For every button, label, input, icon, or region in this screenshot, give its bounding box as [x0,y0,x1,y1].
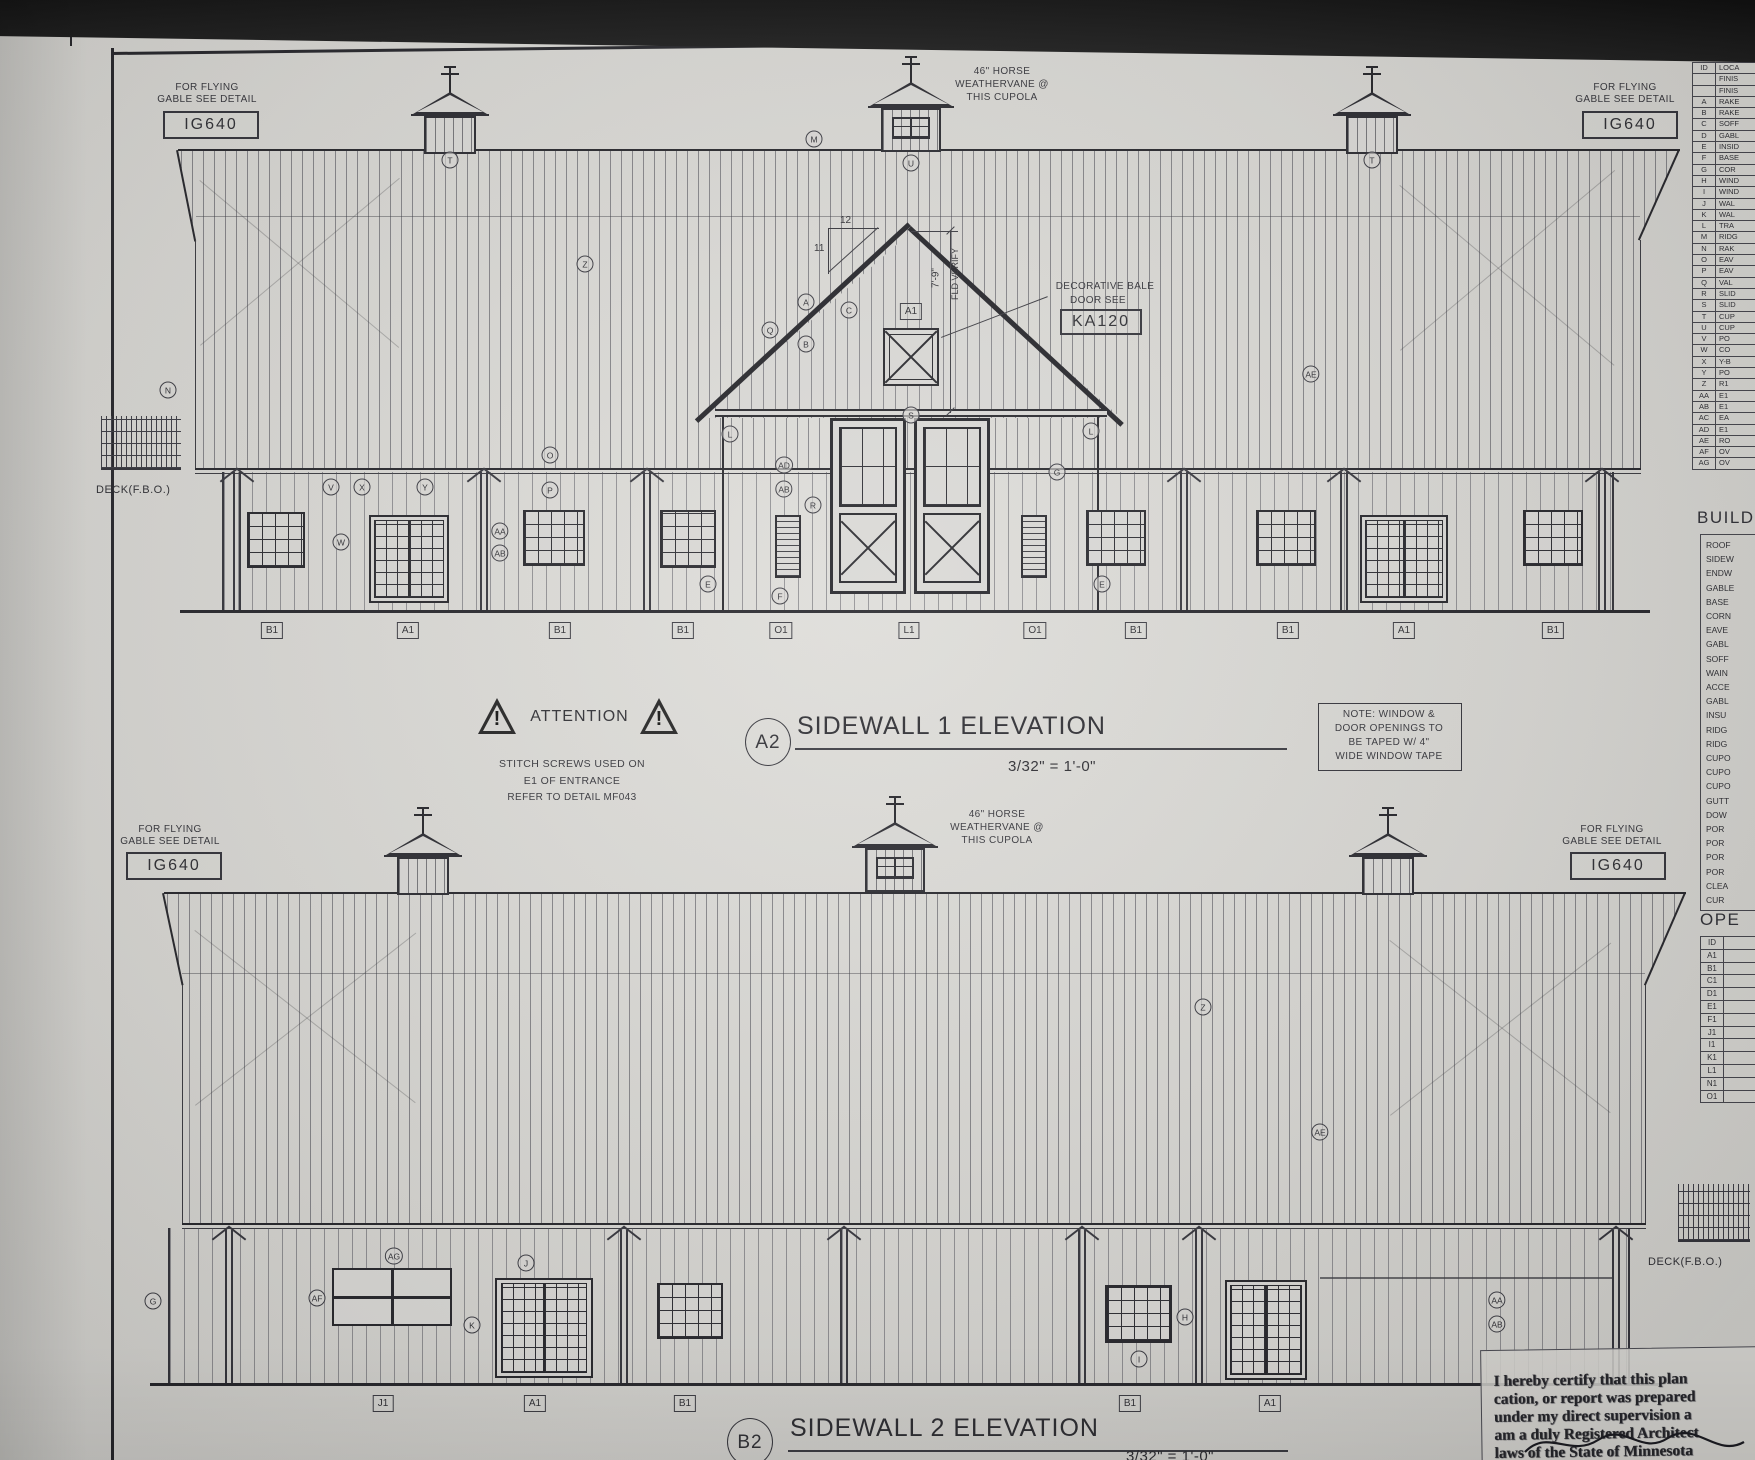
flying-gable-note: GABLE SEE DETAIL [120,836,220,847]
schedule-id-cell: I1 [1701,1039,1724,1051]
ref-circle: J [518,1255,535,1272]
build-item: CORN [1701,609,1755,623]
schedule-id-cell: F [1693,153,1716,163]
schedule-id-cell: X [1693,357,1716,367]
ref-circle: I [1131,1351,1148,1368]
schedule-id-cell: J [1693,199,1716,209]
purlin-line [182,973,1645,974]
note-line: WIDE WINDOW TAPE [1335,751,1442,762]
schedule-desc-cell [1724,1091,1755,1103]
porch-post [840,1230,848,1383]
attention-line: REFER TO DETAIL MF043 [507,792,636,803]
schedule-id-cell: AE [1693,436,1716,446]
opening-tag: O1 [1023,622,1046,639]
opening-tag: L1 [898,622,919,639]
schedule-desc-cell: RAKE [1716,108,1755,118]
schedule-id-cell: B [1693,108,1716,118]
build-item: GABLE [1701,581,1755,595]
schedule-row: KWAL [1693,210,1755,221]
schedule-desc-cell [1724,1078,1755,1090]
ref-circle: V [323,479,340,496]
flying-gable-note: GABLE SEE DETAIL [157,94,257,105]
build-item: CUPO [1701,765,1755,779]
window [1105,1285,1172,1343]
schedule-row: E1 [1701,1001,1755,1014]
build-item: CLEA [1701,879,1755,893]
ground-line [180,610,1650,613]
porch-post [1340,472,1348,610]
door-leaf [501,1283,544,1373]
build-item: CUPO [1701,779,1755,793]
schedule-id-cell: ID [1693,63,1716,73]
ref-circle: AD [775,457,793,474]
schedule-id-cell: L1 [1701,1065,1724,1077]
ref-circle: T [442,152,459,169]
photo-background-edge [0,0,1755,63]
build-item: CUR [1701,893,1755,907]
schedule-row: NRAK [1693,244,1755,255]
ref-circle: E [1094,576,1111,593]
schedule-row: GCOR [1693,165,1755,176]
cupola-body [1346,116,1398,154]
door-leaf [1365,520,1404,598]
schedule-id-cell [1693,74,1716,84]
porch-post [480,472,488,610]
schedule-row: K1 [1701,1052,1755,1065]
signature [1520,1432,1750,1460]
schedule-row: XY-B [1693,357,1755,368]
openings-schedule-title: OPE [1700,910,1740,930]
schedule-desc-cell: E1 [1716,391,1755,401]
porch-post [1078,1230,1086,1383]
build-item: DOW [1701,808,1755,822]
schedule-row: YPO [1693,368,1755,379]
flying-gable-note: GABLE SEE DETAIL [1562,836,1662,847]
warning-triangle-icon: ! [640,698,678,734]
opening-tag: B1 [672,622,694,639]
schedule-id-cell: J1 [1701,1027,1724,1039]
schedule-desc-cell: WAL [1716,199,1755,209]
schedule-row: EINSID [1693,142,1755,153]
ref-circle: AF [309,1290,326,1307]
note-line: BE TAPED W/ 4" [1348,737,1429,748]
schedule-row: AFOV [1693,447,1755,458]
flying-gable-note: FOR FLYING [1580,824,1643,835]
schedule-desc-cell: TRA [1716,221,1755,231]
schedule-row: BRAKE [1693,108,1755,119]
door-window [839,427,897,507]
schedule-desc-cell: WIND [1716,176,1755,186]
build-item: POR [1701,850,1755,864]
deck-label: DECK(F.B.O.) [96,484,170,496]
schedule-id-cell: AC [1693,413,1716,423]
weathervane-note: WEATHERVANE @ [950,822,1044,833]
porch-post [225,1230,233,1383]
schedule-desc-cell: GABL [1716,131,1755,141]
build-item: RIDG [1701,723,1755,737]
build-list-title: BUILD [1697,508,1755,528]
eave-line [182,1223,1646,1225]
schedule-desc-cell [1724,1014,1755,1026]
cupola-roof [386,833,460,855]
porch-post [233,472,241,610]
schedule-id-cell: B1 [1701,963,1724,975]
schedule-desc-cell: CUP [1716,312,1755,322]
schedule-desc-cell [1724,1065,1755,1077]
double-door [369,515,449,603]
flying-gable-note: FOR FLYING [1593,82,1656,93]
schedule-desc-cell [1724,950,1755,962]
drawing-number: B2 [727,1418,773,1460]
build-item: GUTT [1701,794,1755,808]
drawing-title: SIDEWALL 1 ELEVATION [797,712,1106,741]
opening-tag: B1 [1542,622,1564,639]
door-leaf [409,520,444,598]
schedule-desc-cell: WIND [1716,187,1755,197]
detail-reference: IG640 [126,852,222,880]
cupola-body [881,108,941,152]
schedule-desc-cell [1724,937,1755,949]
schedule-desc-cell: COR [1716,165,1755,175]
weathervane-icon [438,64,462,94]
schedule-id-cell: ID [1701,937,1724,949]
detail-reference: KA120 [1060,309,1142,335]
schedule-row: F1 [1701,1014,1755,1027]
roof-edge [182,985,183,1225]
schedule-desc-cell: OV [1716,458,1755,468]
weathervane-icon [899,54,923,84]
schedule-desc-cell: RAK [1716,244,1755,254]
schedule-desc-cell: SLID [1716,289,1755,299]
window [1256,510,1316,566]
openings-schedule: IDA1B1C1D1E1F1J1I1K1L1N1O1 [1700,936,1755,1103]
schedule-row: HWIND [1693,176,1755,187]
drawing-scale: 3/32" = 1'-0" [1008,758,1096,775]
schedule-row: WCO [1693,345,1755,356]
louver-window [1021,515,1047,578]
opening-tag: B1 [1119,1395,1141,1412]
sliding-door [914,418,990,594]
attention-line: E1 OF ENTRANCE [524,775,621,787]
opening-tag: B1 [674,1395,696,1412]
double-door [495,1278,593,1378]
opening-tag: A1 [900,303,922,320]
schedule-desc-cell: FINIS [1716,86,1755,96]
bale-door [883,328,939,386]
schedule-desc-cell: CUP [1716,323,1755,333]
schedule-row: VPO [1693,334,1755,345]
detail-reference: IG640 [1582,111,1678,139]
ref-circle: H [1177,1309,1194,1326]
ref-circle: W [333,534,350,551]
schedule-row: PEAV [1693,266,1755,277]
schedule-row: FINIS [1693,74,1755,85]
schedule-row: FBASE [1693,153,1755,164]
schedule-row: D1 [1701,988,1755,1001]
ref-circle: N [160,382,177,399]
note-line: NOTE: WINDOW & [1343,709,1435,720]
schedule-desc-cell: Y-B [1716,357,1755,367]
pitch-rise-label: 11 [814,243,824,254]
double-door [1360,515,1448,603]
schedule-id-cell: O [1693,255,1716,265]
schedule-id-cell: I [1693,187,1716,197]
schedule-desc-cell: E1 [1716,425,1755,435]
drawing-title: SIDEWALL 2 ELEVATION [790,1414,1099,1443]
weathervane-icon [411,805,435,835]
schedule-row: N1 [1701,1078,1755,1091]
opening-tag: O1 [769,622,792,639]
schedule-row: MRIDG [1693,232,1755,243]
ref-circle: M [806,131,823,148]
build-item: CUPO [1701,751,1755,765]
roof-edge [1640,240,1641,470]
schedule-id-cell: A1 [1701,950,1724,962]
schedule-desc-cell [1724,1039,1755,1051]
sheet-border-left [111,48,114,1460]
roof-edge [1645,985,1646,1225]
ref-circle: X [354,479,371,496]
cupola-body [1362,857,1414,895]
ref-circle: F [772,588,789,605]
schedule-desc-cell: FINIS [1716,74,1755,84]
schedule-row: ZR1 [1693,379,1755,390]
flying-gable-note: GABLE SEE DETAIL [1575,94,1675,105]
ground-line [150,1383,1662,1386]
schedule-desc-cell: RAKE [1716,97,1755,107]
schedule-desc-cell: R1 [1716,379,1755,389]
cupola-body [424,116,476,154]
porch-post [1180,472,1188,610]
note-line: DOOR OPENINGS TO [1335,723,1443,734]
weathervane-icon [1360,64,1384,94]
door-leaf [1230,1285,1266,1375]
cupola-roof [870,82,952,106]
schedule-desc-cell: RIDG [1716,232,1755,242]
schedule-row: J1 [1701,1027,1755,1040]
purlin-line [196,216,1640,217]
ref-circle: E [700,576,717,593]
schedule-desc-cell: WAL [1716,210,1755,220]
ref-circle: G [1049,464,1066,481]
schedule-id-cell: AB [1693,402,1716,412]
drawing-scale: 3/32" = 1'-0" [1126,1448,1214,1460]
ref-circle: S [903,407,920,424]
schedule-desc-cell: SOFF [1716,119,1755,129]
schedule-id-cell: L [1693,221,1716,231]
schedule-desc-cell: EAV [1716,266,1755,276]
schedule-id-cell: M [1693,232,1716,242]
cupola-body [397,857,449,895]
schedule-id-cell: R [1693,289,1716,299]
cupola-roof [1335,92,1409,114]
blueprint-photo: FOR FLYING GABLE SEE DETAIL IG640 FOR FL… [0,0,1755,1460]
schedule-id-cell: AD [1693,425,1716,435]
opening-tag: A1 [524,1395,546,1412]
schedule-row: ACEA [1693,413,1755,424]
wainscot-rail [1320,1277,1612,1279]
door-window [923,427,981,507]
schedule-desc-cell: PO [1716,334,1755,344]
schedule-id-cell: N1 [1701,1078,1724,1090]
schedule-id-cell: H [1693,176,1716,186]
schedule-row: DGABL [1693,131,1755,142]
door-x-brace [923,513,981,583]
build-item: INSU [1701,708,1755,722]
deck-label: DECK(F.B.O.) [1648,1256,1722,1268]
build-list: ROOFSIDEWENDWGABLEBASECORNEAVEGABLSOFFWA… [1700,534,1755,911]
schedule-desc-cell: VAL [1716,278,1755,288]
schedule-row: I1 [1701,1039,1755,1052]
schedule-id-cell: S [1693,300,1716,310]
weathervane-note: WEATHERVANE @ [955,79,1049,90]
opening-tag: B1 [261,622,283,639]
schedule-row: AERO [1693,436,1755,447]
window [657,1283,723,1339]
cupola-roof [854,822,936,846]
schedule-desc-cell: EAV [1716,255,1755,265]
schedule-row: IWIND [1693,187,1755,198]
build-item: POR [1701,865,1755,879]
schedule-row: FINIS [1693,86,1755,97]
schedule-desc-cell [1724,1052,1755,1064]
flying-gable-note: FOR FLYING [138,824,201,835]
door-leaf [1404,520,1443,598]
roof [134,893,1690,1225]
porch-post [1598,472,1606,610]
opening-tag: B1 [1125,622,1147,639]
build-item: RIDG [1701,737,1755,751]
build-item: SOFF [1701,652,1755,666]
schedule-id-cell: AA [1693,391,1716,401]
build-item: GABL [1701,637,1755,651]
schedule-id-cell: AG [1693,458,1716,468]
schedule-id-cell: Y [1693,368,1716,378]
schedule-row: L1 [1701,1065,1755,1078]
schedule-desc-cell: SLID [1716,300,1755,310]
four-pane-window [332,1268,452,1326]
schedule-row: O1 [1701,1091,1755,1103]
cupola-window [876,857,914,879]
deck-hatch [1678,1184,1750,1242]
build-item: ACCE [1701,680,1755,694]
porch-post [643,472,651,610]
schedule-row: OEAV [1693,255,1755,266]
schedule-desc-cell: PO [1716,368,1755,378]
schedule-row: ABE1 [1693,402,1755,413]
schedule-id-cell: C1 [1701,975,1724,987]
schedule-row: QVAL [1693,278,1755,289]
weathervane-note: THIS CUPOLA [966,92,1037,103]
ridge-line [164,892,1686,894]
schedule-row: B1 [1701,963,1755,976]
ref-circle: P [542,482,559,499]
ref-circle: L [1083,423,1100,440]
schedule-id-cell: N [1693,244,1716,254]
schedule-id-cell: AF [1693,447,1716,457]
ref-circle: G [145,1293,162,1310]
ref-circle: Y [417,479,434,496]
deck-hatch [101,416,181,470]
schedule-desc-cell [1724,975,1755,987]
schedule-id-cell: C [1693,119,1716,129]
schedule-id-cell: U [1693,323,1716,333]
porch-post [620,1230,628,1383]
bale-door-note: DECORATIVE BALE [1056,281,1155,292]
build-item: POR [1701,836,1755,850]
schedule-id-cell: P [1693,266,1716,276]
door-leaf [544,1283,587,1373]
schedule-desc-cell: BASE [1716,153,1755,163]
ref-circle: K [464,1317,481,1334]
pitch-triangle [828,228,879,274]
bale-door-note: DOOR SEE [1070,295,1126,306]
weathervane-icon [883,794,907,824]
schedule-id-cell: W [1693,345,1716,355]
build-item: GABL [1701,694,1755,708]
opening-tag: A1 [1393,622,1415,639]
schedule-desc-cell: EA [1716,413,1755,423]
opening-tag: B1 [1277,622,1299,639]
ref-circle: Z [1195,999,1212,1016]
schedule-desc-cell: E1 [1716,402,1755,412]
dimension-note: FLD VERIFY [950,248,960,300]
build-item: ROOF [1701,538,1755,552]
schedule-row: LTRA [1693,221,1755,232]
schedule-row: TCUP [1693,312,1755,323]
opening-tag: A1 [1259,1395,1281,1412]
schedule-desc-cell [1724,1027,1755,1039]
window [1523,510,1583,566]
detail-reference: IG640 [1570,852,1666,880]
double-door [1225,1280,1307,1380]
roof-edge [195,240,196,470]
schedule-row: CSOFF [1693,119,1755,130]
window [247,512,305,568]
build-item: SIDEW [1701,552,1755,566]
schedule-id-cell: D1 [1701,988,1724,1000]
schedule-desc-cell: INSID [1716,142,1755,152]
porch-post [1195,1230,1203,1383]
schedule-desc-cell [1724,1001,1755,1013]
build-item: ENDW [1701,566,1755,580]
door-leaf [1266,1285,1302,1375]
ref-circle: L [722,426,739,443]
ref-circle: R [805,497,822,514]
schedule-row: AGOV [1693,458,1755,468]
schedule-row: ID [1701,937,1755,950]
ref-circle: U [903,155,920,172]
schedule-id-cell: Z [1693,379,1716,389]
schedule-desc-cell: LOCA [1716,63,1755,73]
build-item: EAVE [1701,623,1755,637]
schedule-row: AAE1 [1693,391,1755,402]
attention-title: ATTENTION [522,708,637,726]
cupola-roof [1351,833,1425,855]
schedule-row: JWAL [1693,199,1755,210]
opening-tag: B1 [549,622,571,639]
weathervane-note: THIS CUPOLA [961,835,1032,846]
window [1086,510,1146,566]
weathervane-icon [1376,805,1400,835]
ref-circle: Q [762,322,779,339]
schedule-row: SSLID [1693,300,1755,311]
title-underline [795,748,1287,750]
build-item: POR [1701,822,1755,836]
schedule-desc-cell: OV [1716,447,1755,457]
louver-window [775,515,801,578]
entrance-jamb [722,417,724,611]
